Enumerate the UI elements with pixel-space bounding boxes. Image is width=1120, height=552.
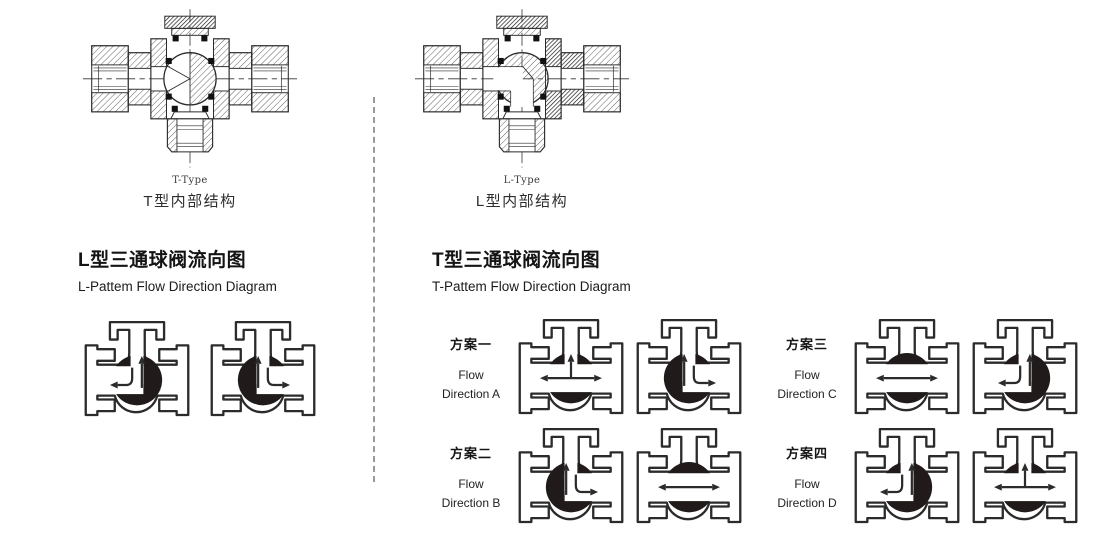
l-cross-section-drawing — [408, 4, 636, 174]
l-pattern-valve-row — [78, 320, 322, 421]
scheme-c-label: 方案三 Flow Direction C — [768, 334, 846, 403]
scheme-d-name: 方案四 — [768, 443, 846, 462]
scheme-c-valve-2 — [966, 318, 1084, 419]
scheme-a-name: 方案一 — [432, 334, 510, 353]
t-pattern-title-zh: T型三通球阀流向图 — [432, 250, 1084, 272]
t-cross-section-drawing — [76, 4, 304, 174]
scheme-b-en-line1: Flow — [432, 475, 510, 494]
scheme-d-en-line1: Flow — [768, 475, 846, 494]
scheme-d-valve-1 — [848, 427, 966, 528]
scheme-b: 方案二 Flow Direction B — [432, 427, 748, 528]
scheme-b-valve-1 — [512, 427, 630, 528]
t-pattern-title-en: T-Pattem Flow Direction Diagram — [432, 278, 1084, 296]
scheme-a: 方案一 Flow Direction A — [432, 318, 748, 419]
scheme-d-en-line2: Direction D — [768, 494, 846, 513]
t-type-label: T-Type — [76, 175, 304, 186]
scheme-a-en-line2: Direction A — [432, 385, 510, 404]
valve-diagram-page: T-Type T型内部结构 L-Type L型内部结构 L型三通球阀流向图 L-… — [0, 0, 1120, 552]
t-structure-caption: T型内部结构 — [76, 190, 304, 211]
l-pattern-title-en: L-Pattem Flow Direction Diagram — [78, 278, 322, 296]
scheme-c: 方案三 Flow Direction C — [768, 318, 1084, 419]
scheme-a-valve-2 — [630, 318, 748, 419]
scheme-d: 方案四 Flow Direction D — [768, 427, 1084, 528]
t-structure-block: T-Type T型内部结构 — [76, 4, 304, 211]
l-pattern-title-zh: L型三通球阀流向图 — [78, 250, 322, 272]
scheme-c-en-line1: Flow — [768, 366, 846, 385]
scheme-a-valve-1 — [512, 318, 630, 419]
l-type-label: L-Type — [408, 175, 636, 186]
l-pattern-valve-1 — [78, 320, 196, 421]
scheme-b-en-line2: Direction B — [432, 494, 510, 513]
scheme-c-en-line2: Direction C — [768, 385, 846, 404]
l-structure-caption: L型内部结构 — [408, 190, 636, 211]
scheme-d-valve-2 — [966, 427, 1084, 528]
t-pattern-section: T型三通球阀流向图 T-Pattem Flow Direction Diagra… — [432, 250, 1084, 528]
scheme-a-label: 方案一 Flow Direction A — [432, 334, 510, 403]
scheme-b-label: 方案二 Flow Direction B — [432, 443, 510, 512]
l-structure-block: L-Type L型内部结构 — [408, 4, 636, 211]
scheme-b-valve-2 — [630, 427, 748, 528]
scheme-d-label: 方案四 Flow Direction D — [768, 443, 846, 512]
scheme-c-valve-1 — [848, 318, 966, 419]
scheme-b-name: 方案二 — [432, 443, 510, 462]
t-pattern-grid: 方案一 Flow Direction A 方案三 Flow Direction … — [432, 318, 1084, 528]
l-pattern-valve-2 — [204, 320, 322, 421]
l-pattern-section: L型三通球阀流向图 L-Pattem Flow Direction Diagra… — [78, 250, 322, 421]
section-divider — [373, 97, 375, 482]
scheme-c-name: 方案三 — [768, 334, 846, 353]
scheme-a-en-line1: Flow — [432, 366, 510, 385]
